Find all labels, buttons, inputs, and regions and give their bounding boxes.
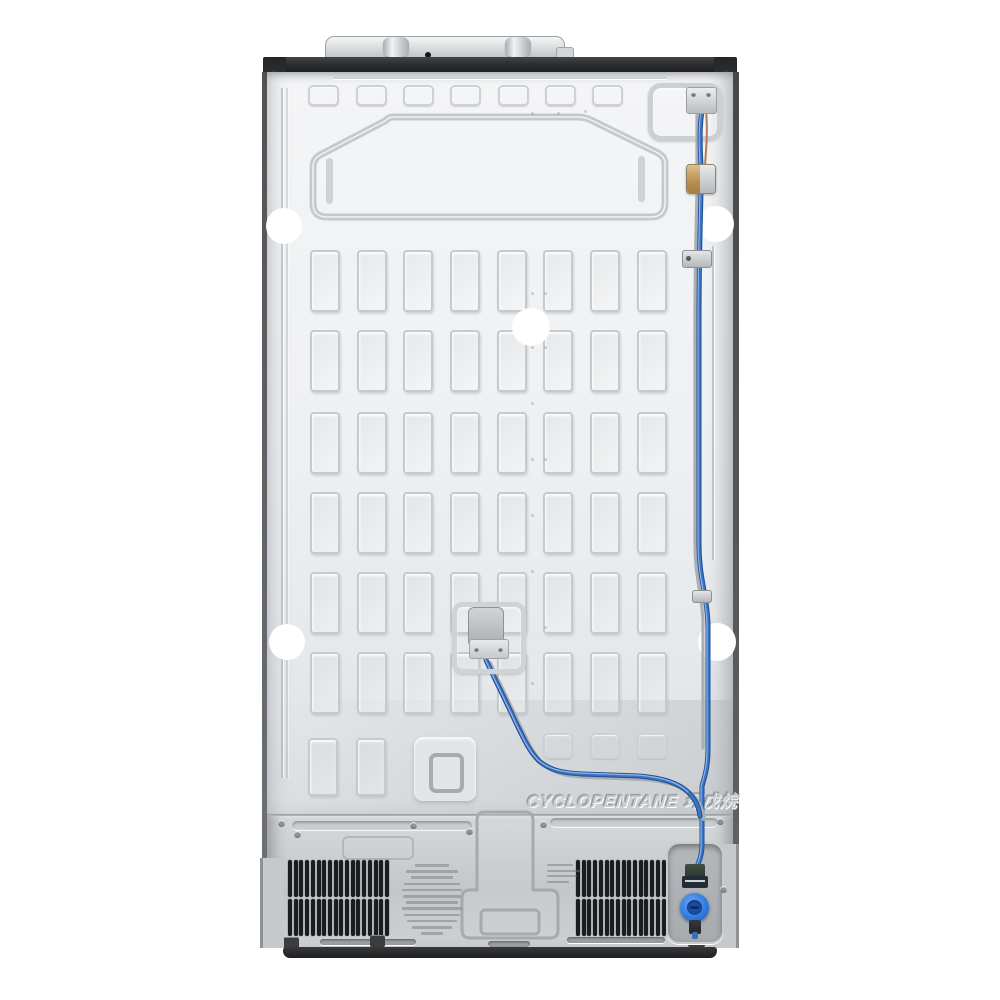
water-tubes bbox=[0, 0, 1000, 1000]
bracket-screw bbox=[474, 647, 479, 652]
bracket-screw bbox=[691, 92, 696, 97]
coupling-steel-half bbox=[700, 165, 715, 193]
inlet-bracket bbox=[686, 87, 717, 114]
coupling-brass-half bbox=[687, 165, 700, 193]
bracket-screw bbox=[706, 92, 711, 97]
valve-label bbox=[682, 876, 708, 888]
tube-clip-lower bbox=[692, 590, 712, 603]
copper-line bbox=[705, 110, 707, 166]
tube-run-center bbox=[485, 659, 704, 819]
tube-clip-upper bbox=[682, 250, 712, 268]
valve-tip bbox=[692, 932, 698, 939]
valve-core-slot bbox=[690, 906, 699, 909]
brass-coupling bbox=[686, 164, 716, 194]
clip-hole bbox=[686, 256, 691, 261]
refrigerator-back-photo: CYCLOPENTANE 环戊烷 bbox=[0, 0, 1000, 1000]
outlet-bracket bbox=[469, 639, 509, 659]
bracket-screw bbox=[498, 647, 503, 652]
